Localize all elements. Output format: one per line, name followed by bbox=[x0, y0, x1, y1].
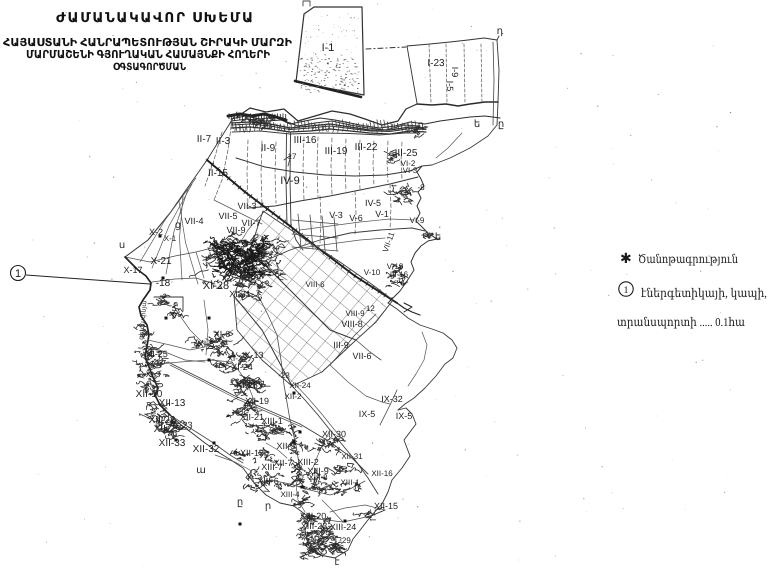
svg-text:XIII-23: XIII-23 bbox=[301, 521, 328, 531]
svg-text:-12: -12 bbox=[363, 304, 375, 313]
svg-text:V-3: V-3 bbox=[329, 210, 343, 220]
svg-text:XII-30: XII-30 bbox=[322, 429, 346, 439]
svg-text:X-1: X-1 bbox=[164, 234, 177, 243]
svg-text:XI-28: XI-28 bbox=[203, 280, 229, 292]
svg-text:դ: դ bbox=[497, 26, 504, 37]
svg-text:I-5: I-5 bbox=[445, 81, 455, 92]
svg-text:✱: ✱ bbox=[620, 252, 632, 267]
svg-text:տրանսպորտի ..... 0.1հա: տրանսպորտի ..... 0.1հա bbox=[617, 315, 745, 329]
svg-text:ր: ր bbox=[265, 501, 271, 512]
svg-text:-23: -23 bbox=[179, 420, 192, 430]
svg-text:XIII-6: XIII-6 bbox=[257, 476, 279, 486]
svg-text:XIII-1: XIII-1 bbox=[340, 478, 360, 487]
svg-text:I-23: I-23 bbox=[427, 58, 445, 69]
svg-text:XII-33: XII-33 bbox=[159, 438, 186, 449]
svg-text:X-21: X-21 bbox=[150, 256, 172, 267]
svg-text:ը: ը bbox=[237, 497, 243, 508]
svg-text:III-25: III-25 bbox=[395, 148, 418, 159]
svg-text:XI-3: XI-3 bbox=[146, 370, 161, 379]
svg-text:XI-5: XI-5 bbox=[198, 339, 215, 349]
svg-text:ԺԱՄԱՆԱԿԱՎՈՐ ՍԽԵՄԱ: ԺԱՄԱՆԱԿԱՎՈՐ ՍԽԵՄԱ bbox=[56, 10, 253, 25]
svg-text:VII-9: VII-9 bbox=[226, 225, 245, 235]
svg-text:Ծանոթագրություն: Ծանոթագրություն bbox=[638, 252, 738, 266]
svg-text:V-10: V-10 bbox=[364, 268, 381, 277]
svg-text:-8: -8 bbox=[417, 183, 425, 192]
svg-text:ը: ը bbox=[498, 119, 504, 130]
svg-text:V-1: V-1 bbox=[375, 209, 389, 219]
svg-text:XI-6: XI-6 bbox=[214, 329, 231, 339]
svg-text:II-3: II-3 bbox=[216, 136, 231, 147]
svg-text:XIII-8: XIII-8 bbox=[308, 473, 328, 482]
svg-text:ե: ե bbox=[435, 232, 441, 243]
svg-text:X-17: X-17 bbox=[123, 265, 142, 275]
svg-text:ե: ե bbox=[474, 119, 480, 130]
svg-text:VIII-8: VIII-8 bbox=[341, 319, 363, 329]
svg-text:XIII-7: XIII-7 bbox=[261, 462, 283, 472]
svg-text:II-9: II-9 bbox=[261, 143, 276, 154]
svg-text:XII-25: XII-25 bbox=[154, 424, 181, 435]
svg-text:XII-19: XII-19 bbox=[245, 396, 269, 406]
svg-text:XII-16: XII-16 bbox=[371, 469, 393, 478]
svg-text:-29: -29 bbox=[339, 536, 351, 545]
svg-text:VII-5: VII-5 bbox=[218, 211, 237, 221]
svg-text:XII-15: XII-15 bbox=[374, 501, 398, 511]
svg-text:VI-9: VI-9 bbox=[410, 216, 425, 225]
svg-text:1: 1 bbox=[624, 285, 629, 296]
svg-text:XII-15: XII-15 bbox=[240, 448, 264, 458]
svg-text:-23: -23 bbox=[278, 371, 290, 380]
svg-text:I-1: I-1 bbox=[322, 42, 335, 54]
svg-text:VIII-6: VIII-6 bbox=[305, 280, 325, 289]
svg-text:էներգետիկայի, կապի,: էներգետիկայի, կապի, bbox=[641, 286, 767, 300]
svg-text:XIII-4: XIII-4 bbox=[280, 490, 300, 499]
svg-text:I-9: I-9 bbox=[450, 67, 460, 78]
svg-text:III-9: III-9 bbox=[333, 340, 349, 350]
svg-text:V-6: V-6 bbox=[349, 213, 363, 223]
svg-text:դ: դ bbox=[418, 120, 425, 131]
svg-text:VII-3: VII-3 bbox=[237, 201, 256, 211]
svg-text:17: 17 bbox=[288, 152, 297, 161]
svg-text:ս: ս bbox=[119, 240, 125, 251]
svg-text:XI-25: XI-25 bbox=[146, 349, 168, 359]
svg-text:III-22: III-22 bbox=[355, 142, 378, 153]
svg-text:III-16: III-16 bbox=[294, 135, 317, 146]
svg-text:IX-5: IX-5 bbox=[359, 409, 376, 419]
svg-text:IX-5: IX-5 bbox=[396, 411, 413, 421]
svg-text:IX-32: IX-32 bbox=[381, 394, 403, 404]
svg-text:XI-31: XI-31 bbox=[229, 289, 251, 299]
svg-text:IV-9: IV-9 bbox=[280, 175, 300, 187]
svg-text:-18: -18 bbox=[156, 278, 171, 289]
svg-text:XII-31: XII-31 bbox=[341, 452, 363, 461]
svg-text:-17: -17 bbox=[394, 276, 406, 285]
svg-text:XII-32: XII-32 bbox=[193, 444, 220, 455]
svg-text:X-13: X-13 bbox=[244, 350, 263, 360]
svg-text:II-7: II-7 bbox=[197, 134, 212, 145]
svg-text:VIII-9: VIII-9 bbox=[345, 309, 365, 318]
svg-text:II-15: II-15 bbox=[208, 168, 228, 179]
svg-text:XII-13: XII-13 bbox=[159, 398, 186, 409]
svg-text:VI-3: VI-3 bbox=[403, 166, 418, 175]
svg-text:ՄԱՐՄԱՇԵՆԻ ԳՅՈՒՂԱԿԱՆ ՀԱՄԱՅՆՔԻ Հ: ՄԱՐՄԱՇԵՆԻ ԳՅՈՒՂԱԿԱՆ ՀԱՄԱՅՆՔԻ ՀՈՂԵՐԻ bbox=[26, 49, 271, 61]
svg-text:XI-26: XI-26 bbox=[236, 380, 258, 390]
svg-text:IV-5: IV-5 bbox=[365, 198, 381, 208]
svg-text:XIII-20: XIII-20 bbox=[300, 511, 327, 521]
svg-text:ՀԱՅԱՍՏԱՆԻ ՀԱՆՐԱՊԵՏՈՒԹՅԱՆ ՇԻՐԱԿ: ՀԱՅԱՍՏԱՆԻ ՀԱՆՐԱՊԵՏՈՒԹՅԱՆ ՇԻՐԱԿԻ ՄԱՐԶԻ bbox=[3, 37, 293, 49]
svg-text:ց: ց bbox=[175, 220, 181, 231]
svg-text:VII-6: VII-6 bbox=[352, 351, 371, 361]
svg-text:ՕԳՏԱԳՈՐԾՄԱՆ: ՕԳՏԱԳՈՐԾՄԱՆ bbox=[113, 62, 186, 73]
svg-text:է: է bbox=[334, 557, 339, 568]
svg-text:1: 1 bbox=[15, 268, 21, 280]
svg-text:ա: ա bbox=[196, 465, 206, 476]
svg-text:XII-24: XII-24 bbox=[289, 381, 311, 390]
svg-text:XIII-1: XIII-1 bbox=[261, 416, 283, 426]
svg-text:XI-24: XI-24 bbox=[231, 362, 253, 372]
svg-text:VII-4: VII-4 bbox=[184, 216, 203, 226]
svg-text:XIII-24: XIII-24 bbox=[330, 522, 357, 532]
svg-text:III-19: III-19 bbox=[325, 146, 348, 157]
